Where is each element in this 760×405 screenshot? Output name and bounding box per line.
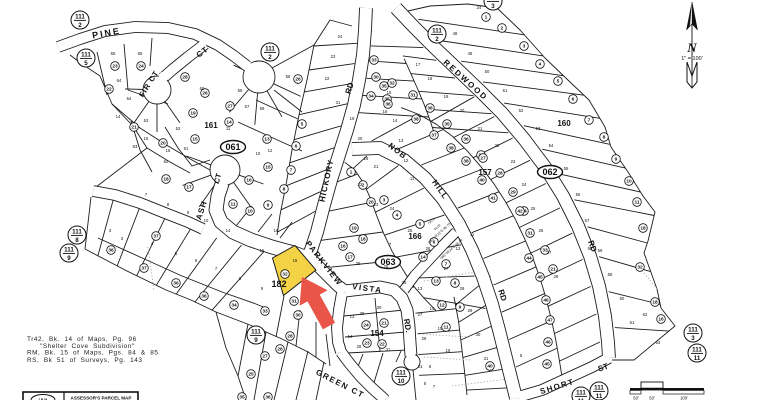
svg-text:160: 160 <box>557 119 571 128</box>
svg-text:34: 34 <box>231 303 237 309</box>
svg-text:56: 56 <box>576 192 581 197</box>
svg-text:26: 26 <box>426 246 431 251</box>
svg-text:2: 2 <box>435 36 439 43</box>
svg-text:25: 25 <box>531 206 536 211</box>
svg-text:17: 17 <box>347 255 353 261</box>
svg-text:32: 32 <box>282 272 288 278</box>
svg-text:61: 61 <box>630 320 635 325</box>
svg-text:50': 50' <box>633 396 639 401</box>
svg-text:60: 60 <box>620 296 625 301</box>
svg-text:9: 9 <box>615 157 618 163</box>
svg-text:28: 28 <box>460 286 465 291</box>
svg-text:26: 26 <box>539 228 544 233</box>
svg-text:20: 20 <box>460 108 465 113</box>
svg-text:31: 31 <box>386 347 391 352</box>
svg-text:30: 30 <box>295 313 301 319</box>
svg-text:25: 25 <box>248 372 254 378</box>
svg-text:50': 50' <box>649 396 655 401</box>
svg-text:22: 22 <box>495 143 500 148</box>
svg-text:25: 25 <box>408 228 413 233</box>
svg-text:18: 18 <box>652 300 658 306</box>
svg-text:39: 39 <box>360 311 365 316</box>
svg-text:15: 15 <box>144 136 149 141</box>
svg-text:28: 28 <box>287 334 293 340</box>
svg-text:15: 15 <box>438 326 443 331</box>
svg-text:45: 45 <box>537 275 543 281</box>
svg-text:11: 11 <box>634 200 639 206</box>
svg-text:55: 55 <box>111 51 116 56</box>
svg-text:8: 8 <box>603 135 606 141</box>
svg-text:10: 10 <box>204 218 209 223</box>
svg-text:5: 5 <box>557 79 560 85</box>
svg-text:60: 60 <box>200 86 205 91</box>
svg-text:34: 34 <box>368 94 374 100</box>
svg-text:64: 64 <box>117 78 122 83</box>
svg-text:29: 29 <box>510 190 516 196</box>
svg-text:21: 21 <box>381 321 387 327</box>
svg-text:111: 111 <box>64 247 74 254</box>
svg-text:27: 27 <box>444 266 449 271</box>
svg-text:111: 111 <box>576 390 586 397</box>
svg-text:52: 52 <box>176 126 181 131</box>
svg-text:N: N <box>686 40 697 55</box>
svg-text:48: 48 <box>453 31 458 36</box>
svg-text:63: 63 <box>133 144 138 149</box>
svg-text:111: 111 <box>692 347 702 354</box>
svg-text:9: 9 <box>459 305 462 311</box>
svg-text:13: 13 <box>433 279 439 285</box>
svg-text:6: 6 <box>295 144 298 150</box>
svg-text:166: 166 <box>408 232 422 241</box>
svg-text:061: 061 <box>225 142 240 152</box>
svg-text:11: 11 <box>596 393 603 400</box>
svg-text:14: 14 <box>226 228 231 233</box>
svg-text:17: 17 <box>416 62 421 67</box>
svg-text:11: 11 <box>470 232 475 237</box>
svg-text:56: 56 <box>286 74 291 79</box>
svg-text:30: 30 <box>476 332 481 337</box>
svg-text:32: 32 <box>637 265 643 271</box>
svg-text:46: 46 <box>545 340 551 346</box>
svg-text:9: 9 <box>267 203 270 209</box>
svg-text:2: 2 <box>501 26 504 32</box>
svg-text:51: 51 <box>503 88 508 93</box>
svg-text:58: 58 <box>608 272 613 277</box>
svg-text:28: 28 <box>182 75 188 81</box>
svg-text:4: 4 <box>539 62 542 68</box>
svg-text:31: 31 <box>527 231 533 237</box>
svg-text:11: 11 <box>226 126 231 131</box>
svg-text:35: 35 <box>239 395 245 400</box>
svg-text:161: 161 <box>204 121 218 130</box>
svg-text:111: 111 <box>75 14 85 21</box>
svg-text:10: 10 <box>256 151 261 156</box>
svg-text:111: 111 <box>594 385 604 392</box>
svg-text:1: 1 <box>485 15 488 21</box>
svg-text:28: 28 <box>357 344 362 349</box>
svg-text:24: 24 <box>522 182 527 187</box>
svg-text:65: 65 <box>138 51 143 56</box>
svg-text:59: 59 <box>598 248 603 253</box>
svg-text:12: 12 <box>439 303 445 309</box>
svg-text:15: 15 <box>387 90 392 95</box>
svg-text:31: 31 <box>336 100 341 105</box>
svg-text:14: 14 <box>226 120 232 126</box>
svg-text:9: 9 <box>67 255 71 262</box>
svg-text:23: 23 <box>511 159 516 164</box>
svg-text:062: 062 <box>542 167 557 177</box>
svg-text:35: 35 <box>444 122 450 128</box>
svg-text:18: 18 <box>364 156 369 161</box>
svg-text:111: 111 <box>81 52 91 59</box>
svg-text:11: 11 <box>230 202 235 208</box>
svg-text:13: 13 <box>264 137 270 143</box>
svg-text:42: 42 <box>517 209 523 215</box>
svg-text:22: 22 <box>358 182 363 187</box>
svg-text:13: 13 <box>350 314 355 319</box>
svg-text:19: 19 <box>350 116 355 121</box>
svg-text:55: 55 <box>564 166 569 171</box>
svg-text:31: 31 <box>484 356 489 361</box>
svg-text:17: 17 <box>186 185 192 191</box>
svg-text:62: 62 <box>643 312 648 317</box>
svg-text:14: 14 <box>420 255 426 261</box>
svg-text:31: 31 <box>291 299 297 305</box>
svg-text:111: 111 <box>265 46 275 53</box>
svg-text:RM, Bk. 15 of Maps, Pgs. 84 &: RM, Bk. 15 of Maps, Pgs. 84 & 85 <box>27 350 158 357</box>
svg-text:13: 13 <box>399 138 404 143</box>
svg-text:26: 26 <box>277 347 283 353</box>
svg-text:50: 50 <box>485 69 490 74</box>
svg-text:33: 33 <box>371 58 377 64</box>
svg-text:ASSESSOR'S PARCEL MAP: ASSESSOR'S PARCEL MAP <box>71 396 132 401</box>
svg-text:16: 16 <box>383 109 388 114</box>
svg-text:39: 39 <box>356 261 361 266</box>
svg-text:15: 15 <box>265 165 271 171</box>
svg-text:3: 3 <box>383 198 386 204</box>
svg-text:111: 111 <box>72 229 82 236</box>
svg-text:111: 111 <box>251 329 261 336</box>
svg-text:53: 53 <box>536 126 541 131</box>
svg-text:28: 28 <box>422 336 427 341</box>
svg-text:18: 18 <box>360 237 366 243</box>
svg-text:59: 59 <box>260 106 265 111</box>
svg-text:6: 6 <box>572 97 575 103</box>
svg-text:16: 16 <box>340 244 346 250</box>
svg-text:23: 23 <box>331 54 336 59</box>
svg-text:35: 35 <box>381 84 387 90</box>
svg-text:27: 27 <box>227 104 233 110</box>
svg-text:5: 5 <box>419 222 422 228</box>
svg-text:38: 38 <box>448 146 454 152</box>
svg-text:21: 21 <box>550 267 556 273</box>
svg-text:52: 52 <box>519 108 524 113</box>
svg-text:1: 1 <box>350 170 353 176</box>
svg-text:111: 111 <box>432 28 442 35</box>
svg-text:12: 12 <box>404 158 409 163</box>
svg-text:37: 37 <box>431 133 437 139</box>
svg-text:27: 27 <box>262 354 268 360</box>
svg-text:26: 26 <box>295 77 301 83</box>
svg-text:16: 16 <box>246 178 252 184</box>
svg-text:26: 26 <box>202 91 208 97</box>
svg-text:8: 8 <box>454 281 457 287</box>
svg-text:154: 154 <box>370 329 384 338</box>
svg-text:36: 36 <box>108 248 114 254</box>
svg-text:1" = 100': 1" = 100' <box>681 56 703 62</box>
svg-text:37: 37 <box>153 234 159 240</box>
svg-text:58: 58 <box>238 88 243 93</box>
svg-text:11: 11 <box>443 325 448 331</box>
svg-text:16: 16 <box>166 148 171 153</box>
svg-text:36: 36 <box>427 106 433 112</box>
svg-text:38: 38 <box>413 117 419 123</box>
svg-text:13: 13 <box>418 286 423 291</box>
svg-text:111: 111 <box>688 327 698 334</box>
svg-text:14: 14 <box>348 334 353 339</box>
svg-text:3: 3 <box>491 3 495 10</box>
svg-text:22: 22 <box>325 76 330 81</box>
svg-text:12: 12 <box>268 148 273 153</box>
svg-text:40: 40 <box>479 178 485 184</box>
svg-text:5: 5 <box>84 60 88 67</box>
svg-text:9: 9 <box>254 337 258 344</box>
svg-text:36: 36 <box>173 281 179 287</box>
svg-text:7: 7 <box>588 118 591 124</box>
svg-text:24: 24 <box>363 323 369 329</box>
svg-text:20: 20 <box>358 136 363 141</box>
svg-text:44: 44 <box>526 256 532 262</box>
svg-text:36: 36 <box>265 395 271 400</box>
svg-text:54: 54 <box>549 143 554 148</box>
svg-text:18: 18 <box>163 177 169 183</box>
svg-text:19: 19 <box>351 226 357 232</box>
svg-text:36: 36 <box>201 294 207 300</box>
svg-text:15: 15 <box>293 258 298 263</box>
svg-text:182: 182 <box>271 279 286 289</box>
svg-text:21: 21 <box>478 126 483 131</box>
svg-text:23: 23 <box>364 341 370 347</box>
svg-text:5: 5 <box>301 122 304 128</box>
svg-text:30: 30 <box>373 75 379 81</box>
svg-text:8: 8 <box>75 237 79 244</box>
svg-text:21: 21 <box>131 125 137 131</box>
svg-text:22: 22 <box>106 87 112 93</box>
svg-text:28: 28 <box>497 171 503 177</box>
svg-text:15: 15 <box>192 137 198 143</box>
svg-text:10: 10 <box>398 378 405 385</box>
svg-text:30: 30 <box>377 305 382 310</box>
svg-text:10: 10 <box>247 209 253 215</box>
svg-text:100': 100' <box>680 396 688 401</box>
svg-text:32: 32 <box>389 81 395 87</box>
svg-text:47: 47 <box>547 318 553 324</box>
svg-text:8: 8 <box>283 187 286 193</box>
svg-text:24: 24 <box>138 64 144 70</box>
svg-text:24: 24 <box>338 34 343 39</box>
svg-text:31: 31 <box>410 93 416 99</box>
svg-text:20: 20 <box>160 141 166 147</box>
svg-text:16: 16 <box>274 228 279 233</box>
svg-text:23: 23 <box>112 64 118 70</box>
svg-text:29: 29 <box>468 308 473 313</box>
svg-text:25: 25 <box>384 264 389 269</box>
svg-text:28: 28 <box>554 274 559 279</box>
svg-text:57: 57 <box>585 218 590 223</box>
svg-text:2: 2 <box>78 22 82 29</box>
svg-text:27: 27 <box>547 250 552 255</box>
svg-text:62: 62 <box>164 159 169 164</box>
svg-text:41: 41 <box>490 196 496 202</box>
svg-text:24: 24 <box>390 206 395 211</box>
svg-text:45: 45 <box>468 51 473 56</box>
svg-text:38: 38 <box>463 159 469 165</box>
svg-text:18: 18 <box>428 76 433 81</box>
svg-text:45: 45 <box>544 362 550 368</box>
svg-text:15: 15 <box>260 248 265 253</box>
svg-text:63: 63 <box>656 340 661 345</box>
svg-text:14: 14 <box>116 114 121 119</box>
svg-text:21: 21 <box>374 164 379 169</box>
svg-text:7: 7 <box>290 168 293 174</box>
svg-text:2: 2 <box>268 54 272 61</box>
svg-text:24: 24 <box>477 5 482 10</box>
svg-text:19: 19 <box>444 94 449 99</box>
svg-text:111: 111 <box>396 370 406 377</box>
svg-text:Tr42, Bk. 14 of Maps, Pg. 96: Tr42, Bk. 14 of Maps, Pg. 96 <box>27 336 137 343</box>
svg-text:61: 61 <box>184 146 189 151</box>
svg-text:14: 14 <box>393 118 398 123</box>
svg-text:36: 36 <box>463 137 469 143</box>
svg-text:46: 46 <box>543 298 549 304</box>
svg-text:19: 19 <box>190 111 196 117</box>
svg-text:37: 37 <box>141 266 147 272</box>
svg-text:11: 11 <box>694 355 701 362</box>
svg-text:16: 16 <box>446 348 451 353</box>
svg-text:36: 36 <box>385 102 391 108</box>
svg-text:27: 27 <box>480 156 486 162</box>
svg-text:3: 3 <box>523 44 526 50</box>
svg-text:23: 23 <box>374 202 379 207</box>
svg-text:27: 27 <box>418 312 423 317</box>
svg-text:57: 57 <box>245 104 250 109</box>
svg-text:54: 54 <box>127 96 132 101</box>
svg-text:14: 14 <box>430 306 435 311</box>
svg-text:26: 26 <box>402 280 407 285</box>
svg-text:4: 4 <box>396 213 399 219</box>
svg-text:58: 58 <box>588 246 593 251</box>
svg-text:10: 10 <box>626 179 632 185</box>
svg-text:40: 40 <box>487 364 493 370</box>
svg-text:RS, Bk 51 of Surveys, Pg. 143: RS, Bk 51 of Surveys, Pg. 143 <box>27 357 142 364</box>
svg-text:18: 18 <box>640 226 646 232</box>
svg-text:31: 31 <box>418 364 423 369</box>
svg-text:33: 33 <box>262 309 268 315</box>
svg-text:53: 53 <box>144 118 149 123</box>
svg-text:16: 16 <box>658 317 664 323</box>
svg-text:22: 22 <box>379 342 385 348</box>
svg-text:3: 3 <box>691 335 695 342</box>
svg-text:11: 11 <box>410 176 415 181</box>
